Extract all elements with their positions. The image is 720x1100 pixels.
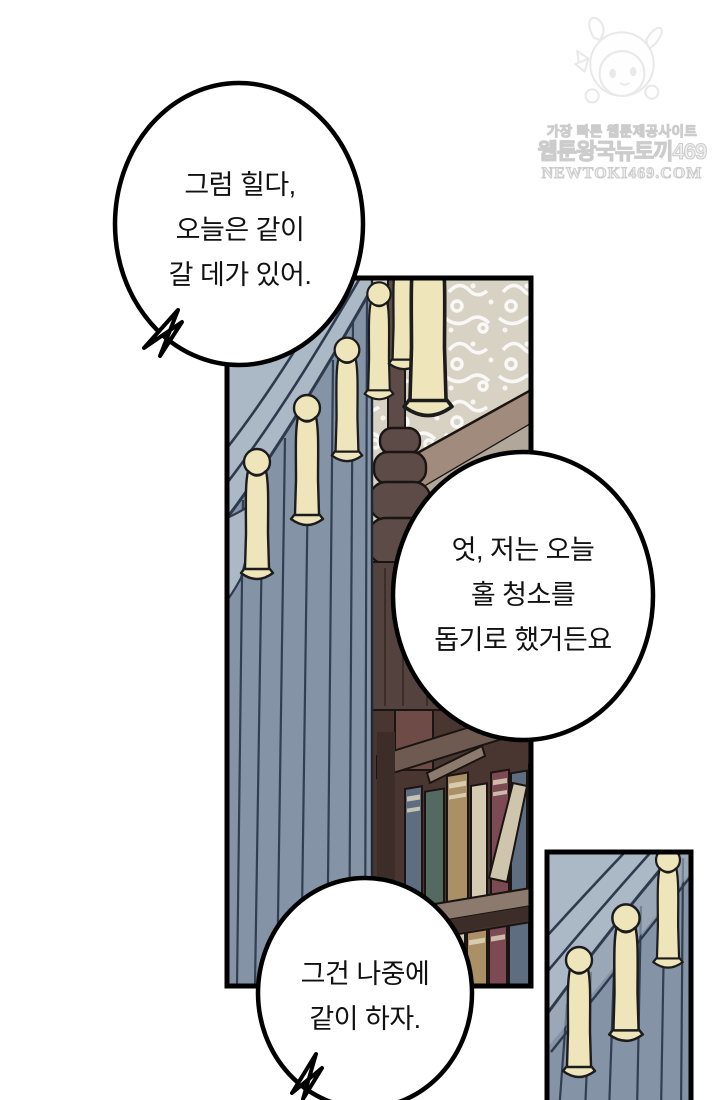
inset-panel xyxy=(547,848,691,1100)
comic-page: 가장 빠른 웹툰제공사이트 웹툰왕국뉴토끼469 NEWTOKI469.COM … xyxy=(0,0,720,1100)
watermark-tagline: 가장 빠른 웹툰제공사이트 xyxy=(533,124,711,139)
dialogue-line: 그건 나중에 xyxy=(245,952,485,997)
dialogue-line: 엇, 저는 오늘 xyxy=(385,528,661,573)
dialogue-line: 갈 데가 있어. xyxy=(110,253,370,298)
bubble-2-text: 엇, 저는 오늘 홀 청소를 돕기로 했거든요 xyxy=(385,528,661,663)
dialogue-line: 오늘은 같이 xyxy=(110,208,370,253)
watermark-mascot-icon xyxy=(564,10,680,122)
site-watermark: 가장 빠른 웹툰제공사이트 웹툰왕국뉴토끼469 NEWTOKI469.COM xyxy=(533,10,711,184)
dialogue-line: 돕기로 했거든요 xyxy=(385,618,661,663)
watermark-sitename: 웹툰왕국뉴토끼469 xyxy=(533,139,711,164)
dialogue-line: 그럼 힐다, xyxy=(110,163,370,208)
dialogue-line: 같이 하자. xyxy=(245,997,485,1042)
dialogue-line: 홀 청소를 xyxy=(385,573,661,618)
watermark-url: NEWTOKI469.COM xyxy=(533,164,711,184)
bubble-1-text: 그럼 힐다, 오늘은 같이 갈 데가 있어. xyxy=(110,163,370,298)
bubble-3-text: 그건 나중에 같이 하자. xyxy=(245,952,485,1042)
